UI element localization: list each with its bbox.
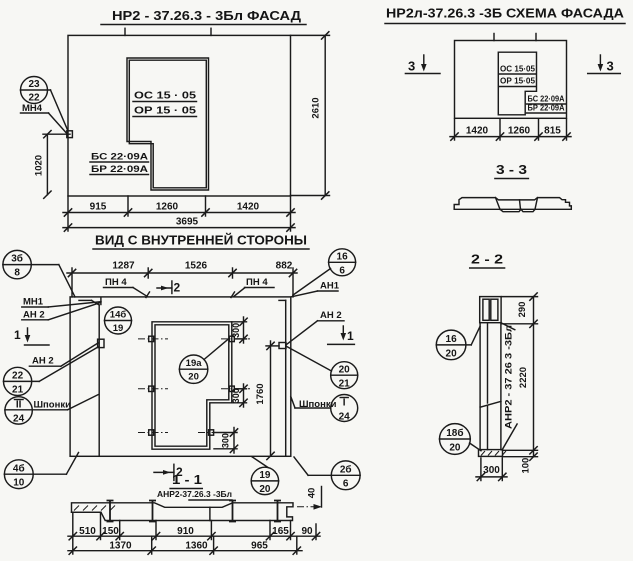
svg-text:I: I [343, 398, 346, 409]
svg-text:510: 510 [79, 526, 96, 537]
svg-text:1420: 1420 [237, 202, 260, 213]
svg-text:40: 40 [307, 488, 318, 499]
svg-text:300: 300 [483, 465, 500, 476]
svg-text:ОС 15 · 05: ОС 15 · 05 [134, 91, 197, 102]
svg-text:2б: 2б [340, 464, 352, 476]
svg-text:3: 3 [607, 59, 614, 74]
svg-text:1260: 1260 [508, 126, 531, 137]
svg-text:2220: 2220 [518, 367, 529, 388]
svg-text:6: 6 [339, 266, 345, 277]
svg-text:20: 20 [259, 484, 271, 495]
svg-text:1420: 1420 [466, 126, 489, 137]
svg-text:3 - 3: 3 - 3 [496, 162, 527, 177]
svg-text:Шпонки: Шпонки [34, 400, 72, 411]
svg-text:4б: 4б [13, 463, 25, 475]
svg-text:ОС 15·05: ОС 15·05 [500, 64, 535, 74]
svg-text:АНР2-37.26.3 -3Бл: АНР2-37.26.3 -3Бл [157, 489, 232, 499]
svg-text:АН 2: АН 2 [320, 310, 342, 321]
svg-text:24: 24 [13, 414, 25, 425]
svg-text:21: 21 [12, 385, 24, 396]
svg-text:ОР 15·05: ОР 15·05 [500, 76, 535, 86]
svg-text:ПН 4: ПН 4 [105, 277, 127, 288]
svg-text:165: 165 [272, 526, 289, 537]
svg-text:16: 16 [446, 334, 458, 345]
svg-text:300: 300 [231, 388, 241, 403]
svg-text:3695: 3695 [176, 217, 199, 228]
svg-text:22: 22 [28, 93, 40, 104]
svg-text:20: 20 [339, 365, 351, 376]
svg-text:1: 1 [347, 329, 354, 343]
svg-text:300: 300 [221, 433, 231, 448]
svg-text:3б: 3б [11, 253, 23, 265]
svg-text:БР 22·09А: БР 22·09А [528, 103, 565, 113]
svg-text:20: 20 [449, 443, 461, 454]
svg-text:300: 300 [231, 323, 241, 338]
svg-text:8: 8 [14, 268, 20, 279]
svg-text:815: 815 [544, 126, 561, 137]
svg-text:1 - 1: 1 - 1 [172, 472, 202, 487]
svg-text:МН1: МН1 [23, 297, 44, 308]
svg-text:16: 16 [337, 252, 349, 263]
svg-text:АН 2: АН 2 [23, 310, 45, 321]
svg-text:24: 24 [339, 412, 351, 423]
svg-text:НР2 - 37.26.3 - 3Бл ФАСАД: НР2 - 37.26.3 - 3Бл ФАСАД [112, 8, 302, 23]
svg-text:10: 10 [13, 478, 25, 489]
svg-text:910: 910 [177, 526, 194, 537]
svg-text:2 - 2: 2 - 2 [471, 252, 503, 267]
svg-text:ПН 4: ПН 4 [246, 277, 268, 288]
svg-text:БР 22·09А: БР 22·09А [91, 164, 148, 175]
svg-text:НР2л-37.26.3 -3Б СХЕМА ФАСА: НР2л-37.26.3 -3Б СХЕМА ФАСАДА [386, 6, 625, 21]
svg-text:1526: 1526 [185, 261, 208, 272]
svg-text:II: II [16, 400, 22, 411]
svg-text:21: 21 [339, 379, 351, 390]
svg-text:915: 915 [90, 202, 107, 213]
svg-text:1020: 1020 [33, 155, 44, 176]
svg-text:2: 2 [174, 281, 181, 295]
svg-text:23: 23 [28, 79, 40, 90]
svg-text:100: 100 [520, 458, 531, 474]
svg-text:2610: 2610 [311, 97, 322, 118]
svg-text:19: 19 [259, 470, 271, 481]
svg-text:19а: 19а [186, 358, 203, 369]
svg-text:ВИД С ВНУТРЕННЕЙ СТОРОНЫ: ВИД С ВНУТРЕННЕЙ СТОРОНЫ [95, 233, 307, 248]
svg-text:1: 1 [14, 328, 21, 342]
svg-text:3: 3 [408, 59, 415, 74]
svg-text:1360: 1360 [185, 540, 208, 551]
svg-text:1287: 1287 [112, 261, 135, 272]
svg-text:290: 290 [517, 302, 528, 318]
svg-text:150: 150 [102, 526, 119, 537]
svg-text:АН1: АН1 [320, 281, 340, 292]
svg-text:1760: 1760 [255, 383, 266, 404]
svg-text:АНР2 - 37 26 3 -3Бл: АНР2 - 37 26 3 -3Бл [504, 325, 515, 429]
svg-text:БС 22·09А: БС 22·09А [91, 152, 148, 163]
svg-text:19: 19 [113, 323, 124, 334]
svg-text:20: 20 [446, 349, 458, 360]
svg-text:90: 90 [301, 526, 313, 537]
svg-text:ОР 15 · 05: ОР 15 · 05 [134, 106, 197, 117]
svg-text:22: 22 [12, 371, 24, 382]
svg-text:18б: 18б [446, 427, 463, 439]
svg-text:14б: 14б [110, 310, 127, 321]
svg-text:882: 882 [276, 261, 293, 272]
svg-text:1370: 1370 [109, 540, 132, 551]
svg-text:1260: 1260 [156, 202, 179, 213]
svg-text:АН 2: АН 2 [32, 356, 54, 367]
svg-text:6: 6 [343, 479, 349, 490]
svg-text:965: 965 [251, 540, 268, 551]
svg-text:20: 20 [188, 372, 199, 383]
